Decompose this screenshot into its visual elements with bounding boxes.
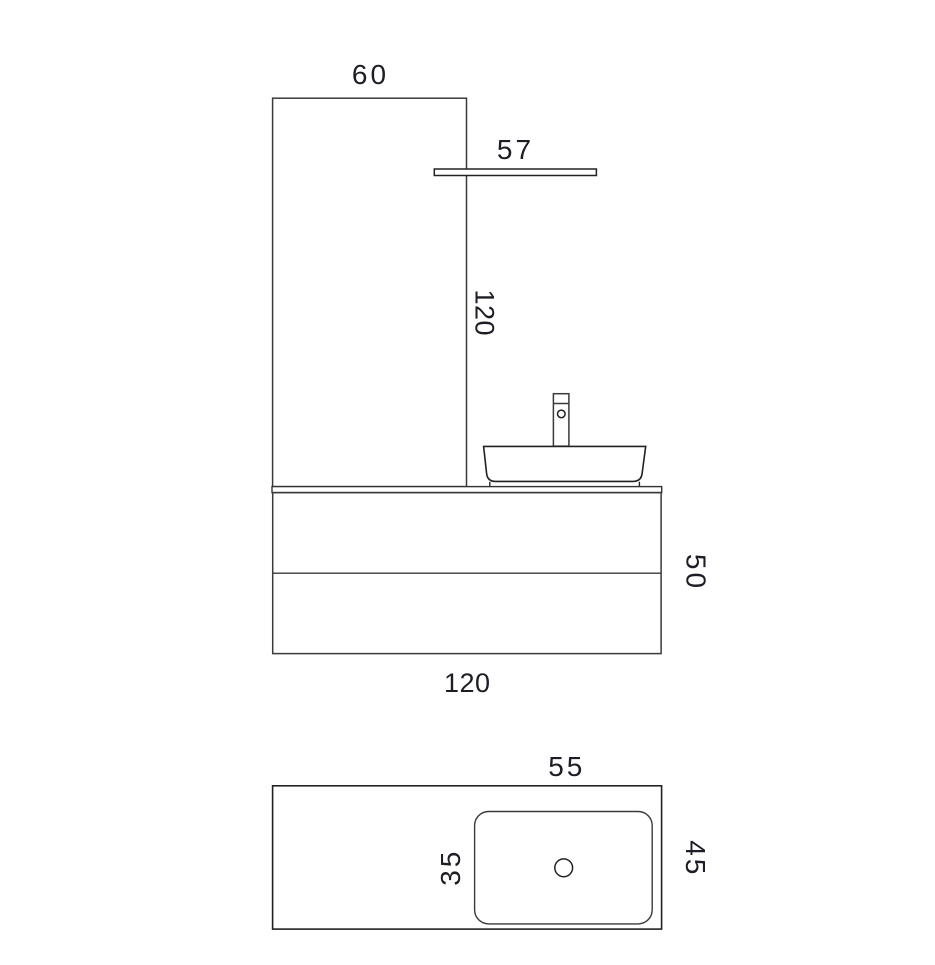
svg-text:50: 50 bbox=[681, 554, 712, 591]
svg-text:55: 55 bbox=[548, 751, 585, 782]
svg-text:45: 45 bbox=[680, 840, 711, 877]
svg-text:57: 57 bbox=[497, 134, 534, 165]
svg-text:120: 120 bbox=[470, 290, 500, 337]
svg-text:120: 120 bbox=[444, 668, 491, 698]
svg-text:35: 35 bbox=[435, 849, 466, 886]
svg-text:60: 60 bbox=[352, 59, 389, 90]
